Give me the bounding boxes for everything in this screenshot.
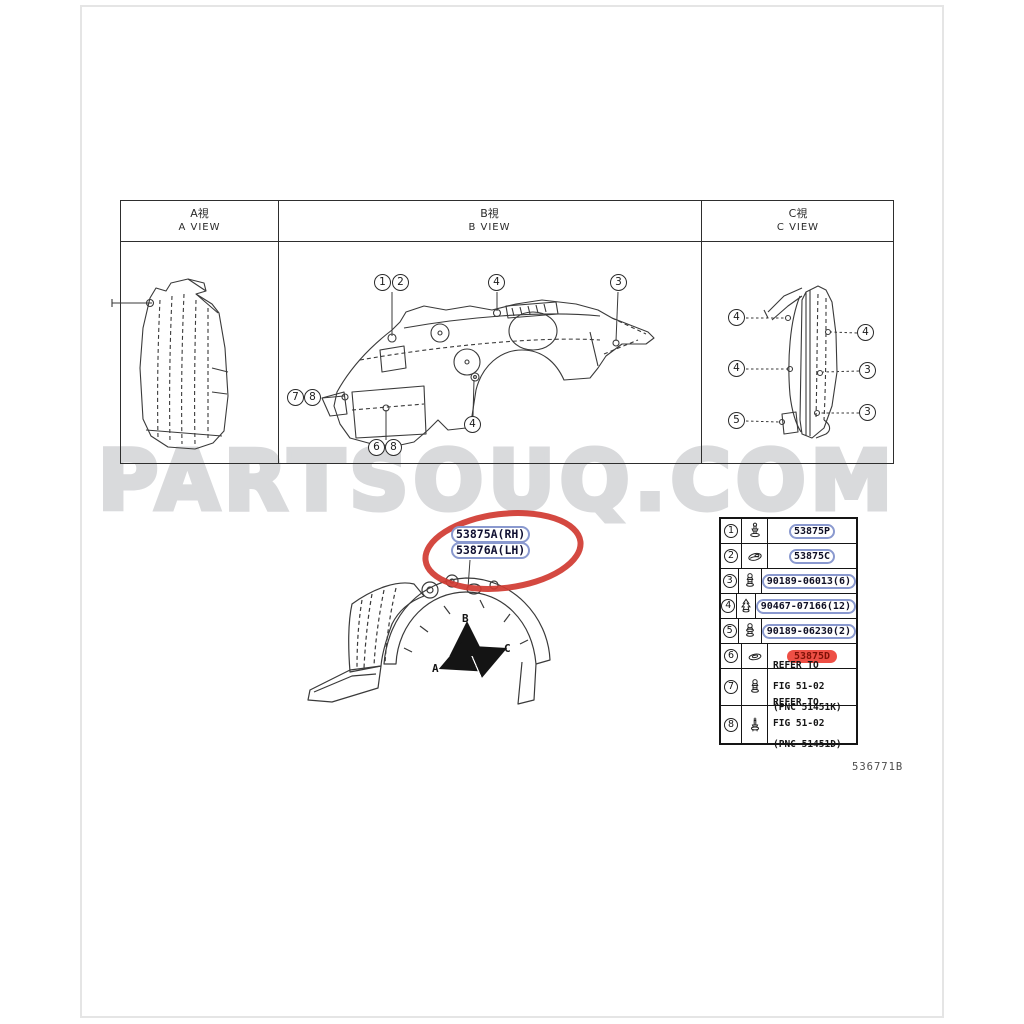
views-table-col-divider-1 bbox=[278, 201, 279, 463]
part-number-link[interactable]: 90467-07166(12) bbox=[756, 599, 856, 614]
callout-4-bottom: 4 bbox=[464, 416, 481, 433]
callout-c-3a: 3 bbox=[859, 362, 876, 379]
figure-code: 536771B bbox=[852, 761, 903, 773]
part-number-link[interactable]: 90189-06230(2) bbox=[762, 624, 856, 639]
rivet-clip-icon bbox=[741, 621, 759, 641]
callout-c-4b: 4 bbox=[857, 324, 874, 341]
callout-2: 2 bbox=[392, 274, 409, 291]
callout-1: 1 bbox=[374, 274, 391, 291]
callout-6: 6 bbox=[368, 439, 385, 456]
callout-c-3b: 3 bbox=[859, 404, 876, 421]
callout-7: 7 bbox=[287, 389, 304, 406]
tree-clip-icon bbox=[737, 596, 755, 616]
b-view-header: B視 B VIEW bbox=[278, 206, 701, 235]
table-row: 3 90189-06013(6) bbox=[721, 569, 856, 594]
part-label-rh[interactable]: 53875A(RH) bbox=[451, 526, 530, 543]
parts-table: 1 53875P 2 53875C 3 bbox=[719, 517, 858, 745]
a-view-header: A視 A VIEW bbox=[121, 206, 278, 235]
callout-c-4a: 4 bbox=[728, 309, 745, 326]
callout-8-bottom: 8 bbox=[385, 439, 402, 456]
callout-4-top: 4 bbox=[488, 274, 505, 291]
screw-pin-icon bbox=[746, 715, 764, 735]
views-table-col-divider-2 bbox=[701, 201, 702, 463]
table-row: 5 90189-06230(2) bbox=[721, 619, 856, 644]
part-number-link[interactable]: 53875P bbox=[789, 524, 835, 539]
table-row: 8 REFER TO FIG 51-02 (PNC 51451D) bbox=[721, 706, 856, 743]
flat-clip-icon bbox=[746, 546, 764, 566]
refer-note: REFER TO FIG 51-02 (PNC 51451D) bbox=[768, 698, 856, 751]
pin-clip-icon bbox=[746, 521, 764, 541]
views-table-header-divider bbox=[121, 241, 893, 242]
rivet-clip-icon bbox=[741, 571, 759, 591]
grommet-clip-icon bbox=[746, 646, 764, 666]
row-number: 6 bbox=[724, 649, 738, 663]
row-number: 1 bbox=[724, 524, 738, 538]
table-row: 2 53875C bbox=[721, 544, 856, 569]
callout-3-top: 3 bbox=[610, 274, 627, 291]
table-row: 4 90467-07166(12) bbox=[721, 594, 856, 619]
row-number: 7 bbox=[724, 680, 738, 694]
table-row: 1 53875P bbox=[721, 519, 856, 544]
catalog-page: PARTSOUQ.COM A視 A VIEW B視 B VIEW C視 C VI… bbox=[0, 0, 1024, 1024]
callout-c-4c: 4 bbox=[728, 360, 745, 377]
row-number: 8 bbox=[724, 718, 738, 732]
part-label-lh[interactable]: 53876A(LH) bbox=[451, 542, 530, 559]
row-number: 5 bbox=[723, 624, 737, 638]
views-table: A視 A VIEW B視 B VIEW C視 C VIEW bbox=[120, 200, 894, 464]
part-number-link[interactable]: 90189-06013(6) bbox=[762, 574, 856, 589]
rivet-clip-icon bbox=[746, 677, 764, 697]
row-number: 2 bbox=[724, 549, 738, 563]
callout-8-left: 8 bbox=[304, 389, 321, 406]
callout-c-5: 5 bbox=[728, 412, 745, 429]
c-view-header: C視 C VIEW bbox=[701, 206, 895, 235]
part-number-link[interactable]: 53875C bbox=[789, 549, 835, 564]
row-number: 3 bbox=[723, 574, 737, 588]
row-number: 4 bbox=[721, 599, 735, 613]
